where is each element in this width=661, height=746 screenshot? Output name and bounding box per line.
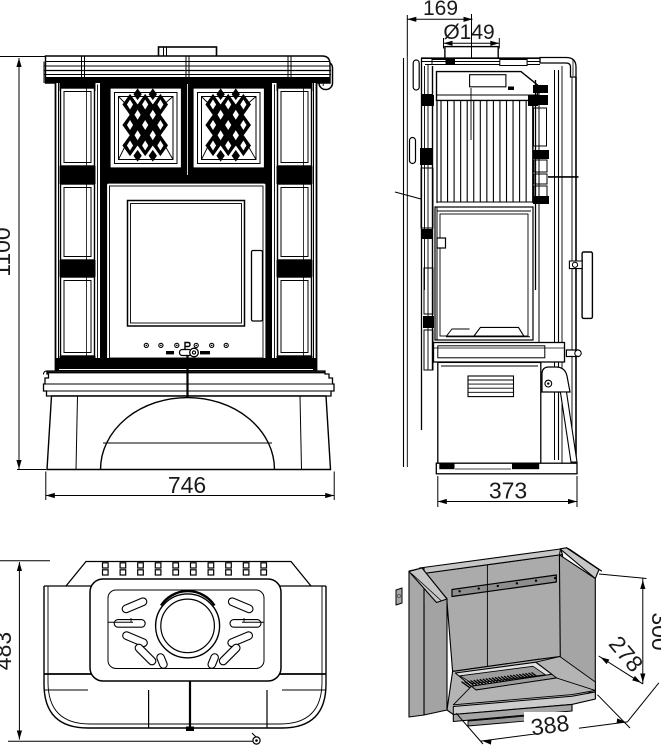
svg-text:483: 483 xyxy=(0,632,16,670)
svg-text:169: 169 xyxy=(423,0,458,20)
svg-text:373: 373 xyxy=(489,478,527,504)
svg-text:388: 388 xyxy=(529,710,570,741)
svg-text:1100: 1100 xyxy=(0,227,15,276)
svg-text:746: 746 xyxy=(168,472,206,498)
svg-text:300: 300 xyxy=(647,612,661,650)
svg-text:Ø149: Ø149 xyxy=(443,21,494,44)
